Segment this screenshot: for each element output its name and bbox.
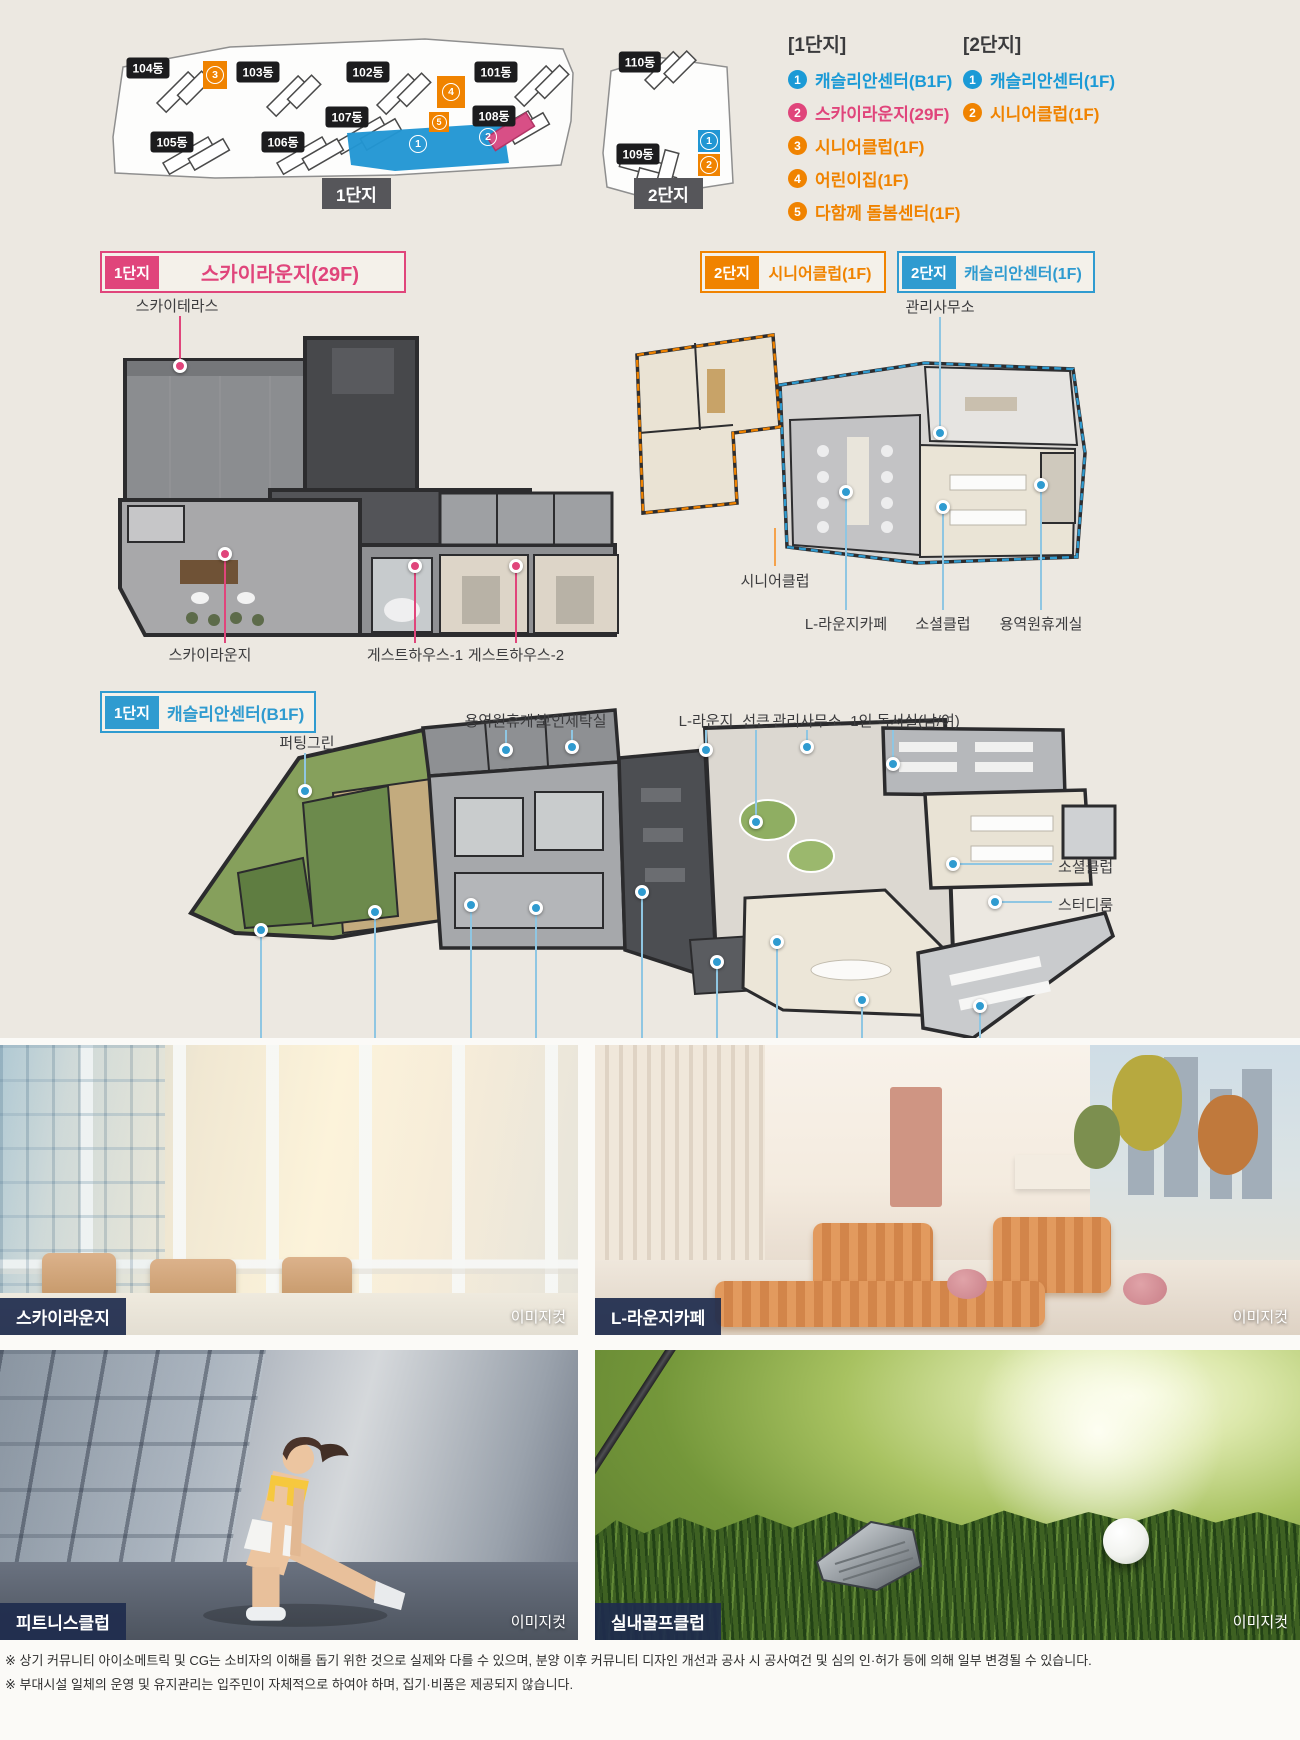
leader-line bbox=[304, 753, 306, 787]
label-l-lounge-cafe: L-라운지카페 bbox=[805, 613, 887, 634]
legend-label: 어린이집(1F) bbox=[815, 166, 909, 191]
plan-dot bbox=[886, 757, 900, 771]
image-cut-tag: 이미지컷 bbox=[511, 1306, 566, 1327]
leader-line bbox=[1000, 901, 1052, 903]
golf-club-head bbox=[813, 1518, 943, 1608]
cafe-door bbox=[890, 1087, 942, 1207]
slat-wall bbox=[595, 1045, 765, 1271]
label-senior-club: 시니어클럽 bbox=[740, 570, 809, 591]
orange-sofa bbox=[715, 1281, 1045, 1327]
leader-line bbox=[942, 513, 944, 610]
legend-label: 스카이라운지(29F) bbox=[815, 100, 949, 125]
leader-line bbox=[892, 730, 894, 760]
building-label: 105동 bbox=[150, 132, 193, 153]
plan-dot bbox=[218, 547, 232, 561]
sky-lounge-badge: 1단지 bbox=[105, 256, 159, 289]
leader-line bbox=[224, 560, 226, 643]
legend-num-icon: 2 bbox=[788, 103, 807, 122]
plan-dot bbox=[988, 895, 1002, 909]
label-b1-office: 관리사무소 bbox=[772, 710, 841, 731]
legend-title: [1단지] bbox=[788, 30, 960, 57]
plan-dot bbox=[946, 857, 960, 871]
label-guesthouse-1: 게스트하우스-1 bbox=[367, 644, 463, 665]
plan-dot bbox=[368, 905, 382, 919]
leader-line bbox=[774, 528, 776, 566]
complex1-badge: 1단지 bbox=[322, 178, 391, 209]
label-b1-social-club: 소셜클럽 bbox=[1058, 856, 1113, 877]
plan-dot bbox=[173, 359, 187, 373]
castlian2-badge: 2단지 bbox=[902, 256, 956, 289]
label-b1-single-reading: 1인 독서실(남/여) bbox=[850, 710, 959, 731]
building-label: 108동 bbox=[472, 106, 515, 127]
plan-dot bbox=[254, 923, 268, 937]
plan-dot bbox=[749, 815, 763, 829]
site-marker-care-center: 5 bbox=[429, 112, 449, 132]
plan-dot bbox=[298, 784, 312, 798]
plan-dot bbox=[635, 885, 649, 899]
sky-lounge-floorplan bbox=[110, 330, 620, 640]
leader-line bbox=[179, 316, 181, 362]
sun-glow bbox=[938, 1350, 1258, 1541]
plan-dot bbox=[509, 559, 523, 573]
leader-line bbox=[755, 730, 757, 818]
brochure-page: 104동 103동 102동 101동 107동 108동 105동 106동 … bbox=[0, 0, 1300, 1740]
legend-label: 시니어클럽(1F) bbox=[990, 100, 1099, 125]
legend-complex1: [1단지] 1캐슬리안센터(B1F) 2스카이라운지(29F) 3시니어클럽(1… bbox=[788, 30, 960, 232]
plan-dot bbox=[855, 993, 869, 1007]
legend-label: 캐슬리안센터(B1F) bbox=[815, 67, 952, 92]
leader-line bbox=[958, 863, 1052, 865]
label-social-club-2: 소셜클럽 bbox=[915, 613, 970, 634]
legend-num-icon: 5 bbox=[788, 202, 807, 221]
plan-dot bbox=[1034, 478, 1048, 492]
building-label: 107동 bbox=[325, 107, 368, 128]
photo-l-lounge-cafe: L-라운지카페 이미지컷 bbox=[595, 1045, 1300, 1335]
site-marker-castlian-2: 1 bbox=[698, 130, 720, 152]
photo-caption: 실내골프클럽 bbox=[595, 1603, 721, 1640]
complex2-badge: 2단지 bbox=[634, 178, 703, 209]
leader-line bbox=[535, 914, 537, 1056]
leader-line bbox=[1040, 491, 1042, 610]
fitness-person-figure bbox=[160, 1410, 420, 1630]
site-marker-castlian-b1: 1 bbox=[408, 134, 428, 154]
plan-dot bbox=[565, 740, 579, 754]
label-b1-l-lounge: L-라운지 bbox=[679, 710, 734, 731]
plan-dot bbox=[699, 743, 713, 757]
photo-caption: 스카이라운지 bbox=[0, 1298, 126, 1335]
sky-lounge-title: 스카이라운지(29F) bbox=[159, 258, 401, 287]
leader-line bbox=[939, 317, 941, 429]
label-sky-lounge: 스카이라운지 bbox=[169, 644, 252, 665]
plan-dot bbox=[936, 500, 950, 514]
plan-dot bbox=[464, 898, 478, 912]
plan-dot bbox=[710, 955, 724, 969]
label-b1-laundry: 코인세탁실 bbox=[537, 710, 606, 731]
label-staff-lounge-2: 용역원휴게실 bbox=[1000, 613, 1083, 634]
castlian-b1-badge: 1단지 bbox=[105, 696, 159, 729]
label-b1-putting-green: 퍼팅그린 bbox=[279, 732, 334, 753]
disclaimer-line-2: ※ 부대시설 일체의 운영 및 유지관리는 입주민이 자체적으로 하여야 하며,… bbox=[5, 1674, 573, 1693]
label-mgmt-office-2: 관리사무소 bbox=[905, 296, 974, 317]
legend-num-icon: 4 bbox=[788, 169, 807, 188]
pink-ottoman bbox=[947, 1269, 987, 1299]
plan-dot bbox=[839, 485, 853, 499]
leader-line bbox=[414, 572, 416, 643]
disclaimer-line-1: ※ 상기 커뮤니티 아이소메트릭 및 CG는 소비자의 이해를 돕기 위한 것으… bbox=[5, 1650, 1092, 1669]
label-sky-terrace: 스카이테라스 bbox=[136, 295, 219, 316]
building-label: 110동 bbox=[619, 52, 661, 73]
photo-caption: 피트니스클럽 bbox=[0, 1603, 126, 1640]
building-label: 101동 bbox=[474, 62, 517, 83]
legend-num-icon: 1 bbox=[963, 70, 982, 89]
legend-num-icon: 3 bbox=[788, 136, 807, 155]
photo-sky-lounge: 스카이라운지 이미지컷 bbox=[0, 1045, 578, 1335]
leader-line bbox=[845, 498, 847, 610]
legend-complex2: [2단지] 1캐슬리안센터(1F) 2시니어클럽(1F) bbox=[963, 30, 1115, 133]
label-guesthouse-2: 게스트하우스-2 bbox=[468, 644, 564, 665]
pink-ottoman bbox=[1123, 1273, 1167, 1305]
plan-dot bbox=[408, 559, 422, 573]
senior-club-badge: 2단지 bbox=[705, 256, 759, 289]
photo-fitness-club: 피트니스클럽 이미지컷 bbox=[0, 1350, 578, 1640]
leader-line bbox=[515, 572, 517, 643]
label-b1-sunken: 선큰 bbox=[742, 710, 770, 731]
image-cut-tag: 이미지컷 bbox=[1233, 1306, 1288, 1327]
label-b1-study-room: 스터디룸 bbox=[1058, 894, 1113, 915]
photo-indoor-golf: 실내골프클럽 이미지컷 bbox=[595, 1350, 1300, 1640]
legend-label: 다함께 돌봄센터(1F) bbox=[815, 199, 960, 224]
image-cut-tag: 이미지컷 bbox=[1233, 1611, 1288, 1632]
site-marker-daycare: 4 bbox=[437, 76, 465, 108]
building-label: 103동 bbox=[236, 62, 279, 83]
image-cut-tag: 이미지컷 bbox=[511, 1611, 566, 1632]
plan-dot bbox=[933, 426, 947, 440]
castlian2-title: 캐슬리안센터(1F) bbox=[956, 260, 1090, 284]
building-label: 102동 bbox=[346, 62, 389, 83]
site-marker-sky-lounge: 2 bbox=[478, 127, 498, 147]
site-marker-senior-club: 3 bbox=[203, 61, 227, 89]
plan-dot bbox=[499, 743, 513, 757]
plan-dot bbox=[800, 740, 814, 754]
legend-num-icon: 1 bbox=[788, 70, 807, 89]
leader-line bbox=[470, 911, 472, 1056]
building-label: 104동 bbox=[126, 58, 169, 79]
photo-caption: L-라운지카페 bbox=[595, 1298, 721, 1335]
legend-label: 캐슬리안센터(1F) bbox=[990, 67, 1115, 92]
golf-ball bbox=[1103, 1518, 1149, 1564]
legend-num-icon: 2 bbox=[963, 103, 982, 122]
building-label: 109동 bbox=[616, 144, 659, 165]
legend-label: 시니어클럽(1F) bbox=[815, 133, 924, 158]
sky-lounge-header: 1단지 스카이라운지(29F) bbox=[100, 251, 406, 293]
legend-title: [2단지] bbox=[963, 30, 1115, 57]
plan-dot bbox=[973, 999, 987, 1013]
label-b1-staff-lounge: 용역원휴게실 bbox=[465, 710, 548, 731]
site-marker-senior-2: 2 bbox=[698, 154, 720, 176]
castlian2-header: 2단지 캐슬리안센터(1F) bbox=[897, 251, 1095, 293]
senior-club-title: 시니어클럽(1F) bbox=[759, 260, 881, 284]
building-label: 106동 bbox=[261, 132, 304, 153]
plan-dot bbox=[770, 935, 784, 949]
plan-dot bbox=[529, 901, 543, 915]
leader-line bbox=[374, 918, 376, 1056]
senior-club-header: 2단지 시니어클럽(1F) bbox=[700, 251, 886, 293]
